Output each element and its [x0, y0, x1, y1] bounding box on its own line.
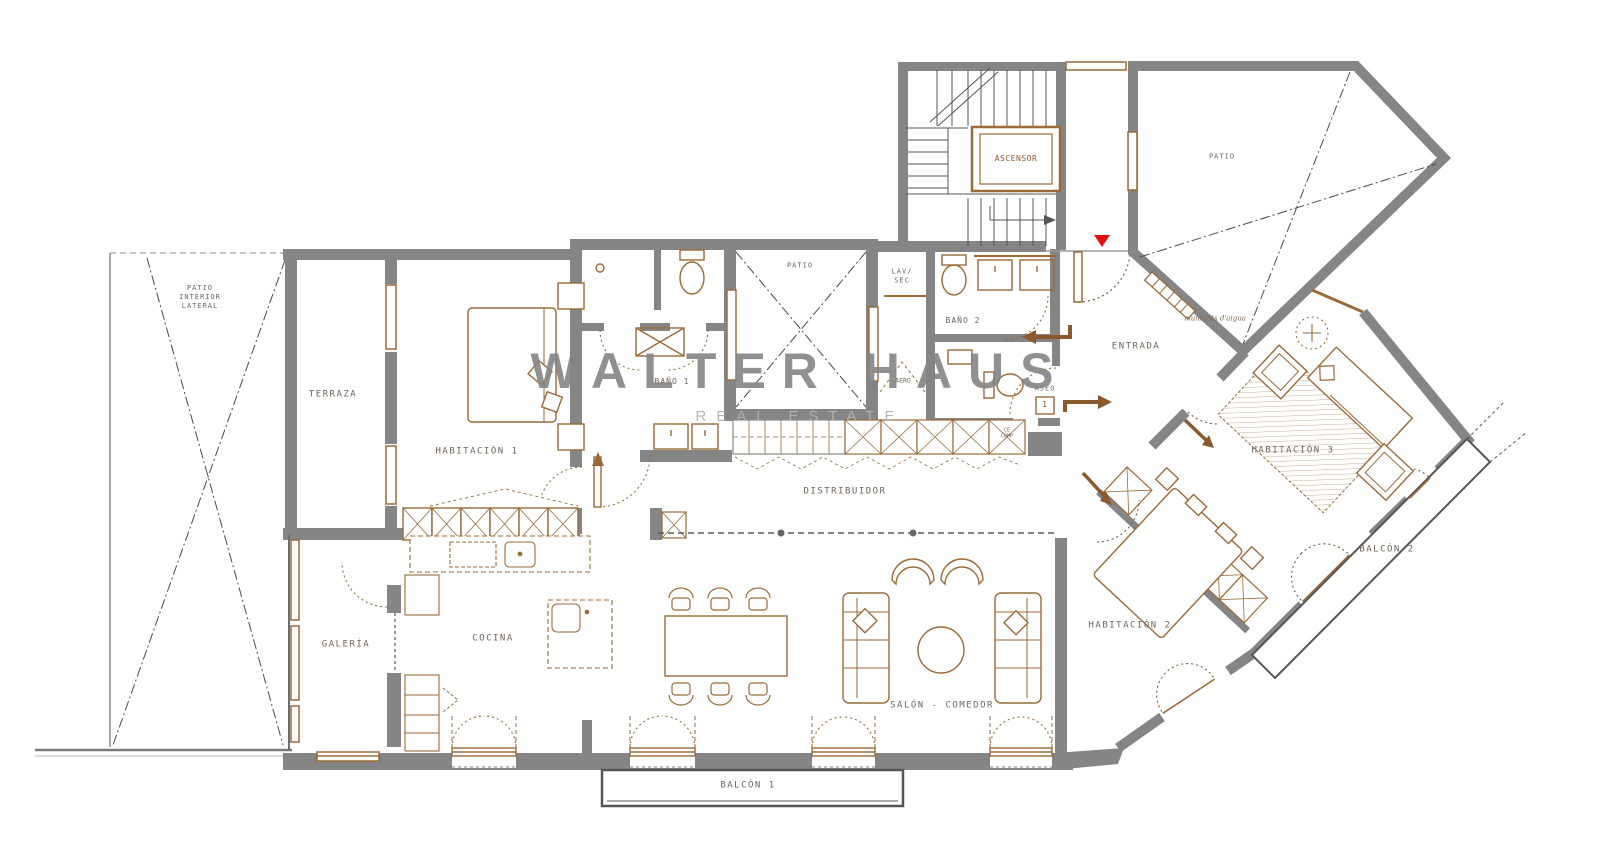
bedroom-1-furniture — [403, 283, 584, 540]
room-label-terraza: TERRAZA — [309, 389, 357, 400]
room-label-lav-sec: LAV/ SEC — [892, 267, 913, 285]
room-label-balcon-2: BALCÓN 2 — [1359, 544, 1414, 555]
label-muntants: muntants d'aigua — [1184, 315, 1246, 324]
patio-lateral-outline — [35, 253, 292, 756]
room-label-habitacion-1: HABITACIÓN 1 — [435, 446, 518, 457]
room-label-habitacion-2: HABITACIÓN 2 — [1088, 620, 1171, 631]
entry-marker-triangle — [1094, 235, 1110, 247]
room-label-patio: PATIO — [1209, 153, 1235, 162]
floor-plan: PATIO INTERIOR LATERAL TERRAZA HABITACIÓ… — [0, 0, 1600, 868]
label-marker-1: 1 — [1042, 400, 1048, 410]
landing-lintel — [1066, 62, 1126, 70]
room-label-balcon-1: BALCÓN 1 — [720, 780, 775, 791]
room-label-distribuidor: DISTRIBUIDOR — [803, 486, 886, 497]
french-doors — [452, 716, 1052, 756]
room-label-galeria: GALERÍA — [322, 639, 370, 650]
room-label-patio-central: PATIO — [787, 262, 813, 271]
label-ce-comp: CE COMP — [1001, 429, 1013, 440]
wing-window-strip — [1312, 290, 1363, 312]
floor-plan-drawing — [0, 0, 1600, 868]
room-label-patio-interior-lateral: PATIO INTERIOR LATERAL — [179, 284, 221, 310]
room-label-habitacion-3: HABITACIÓN 3 — [1251, 445, 1334, 456]
watermark-subtitle: REAL ESTATE — [696, 408, 905, 425]
living-dining-furniture — [665, 559, 1041, 705]
watermark-title: WALTER HAUS — [531, 342, 1070, 400]
room-label-bano-2: BAÑO 2 — [946, 316, 981, 326]
room-label-cocina: COCINA — [472, 633, 514, 644]
room-label-entrada: ENTRADA — [1112, 341, 1160, 352]
room-label-salon-comedor: SALÓN - COMEDOR — [890, 700, 994, 711]
room-label-ascensor: ASCENSOR — [995, 154, 1038, 164]
stair-direction-arrow — [1044, 215, 1056, 225]
